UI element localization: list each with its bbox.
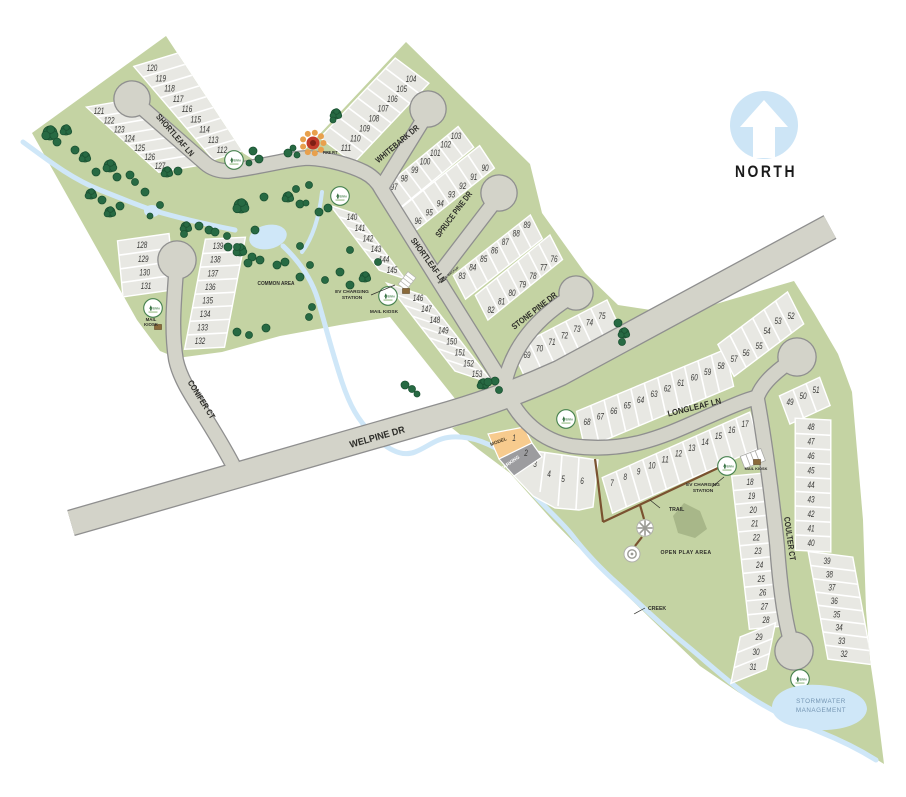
svg-text:57: 57	[730, 354, 738, 364]
svg-text:STATION: STATION	[342, 295, 363, 301]
svg-text:94: 94	[437, 199, 444, 209]
svg-text:133: 133	[197, 323, 208, 333]
svg-text:STORMWATER: STORMWATER	[796, 698, 846, 705]
svg-text:123: 123	[114, 125, 125, 135]
svg-text:30: 30	[752, 647, 759, 657]
svg-text:102: 102	[440, 140, 451, 150]
svg-text:87: 87	[502, 237, 510, 247]
svg-text:148: 148	[430, 315, 441, 325]
svg-text:31: 31	[749, 662, 756, 672]
svg-text:61: 61	[677, 378, 684, 388]
svg-text:116: 116	[182, 104, 193, 114]
svg-text:103: 103	[451, 131, 462, 141]
svg-text:43: 43	[807, 495, 814, 505]
svg-text:49: 49	[786, 397, 793, 407]
svg-text:130: 130	[139, 268, 150, 278]
svg-text:33: 33	[838, 636, 845, 646]
svg-text:28: 28	[762, 615, 770, 625]
svg-text:EV CHARGING: EV CHARGING	[335, 289, 369, 295]
svg-text:86: 86	[491, 246, 498, 256]
svg-text:4: 4	[547, 469, 551, 479]
svg-text:65: 65	[624, 400, 632, 410]
svg-text:16: 16	[728, 425, 735, 435]
svg-text:48: 48	[807, 422, 814, 432]
svg-text:118: 118	[164, 84, 175, 94]
svg-text:75: 75	[598, 311, 606, 321]
svg-text:121: 121	[94, 106, 105, 116]
svg-text:EV CHARGING: EV CHARGING	[686, 482, 720, 488]
svg-text:10: 10	[648, 460, 655, 470]
svg-text:FIRE PIT: FIRE PIT	[323, 150, 338, 155]
svg-text:70: 70	[536, 344, 543, 354]
svg-text:35: 35	[833, 609, 841, 619]
svg-text:45: 45	[807, 466, 815, 476]
svg-text:105: 105	[396, 84, 407, 94]
svg-text:81: 81	[498, 297, 505, 307]
svg-text:67: 67	[597, 412, 605, 422]
svg-text:84: 84	[469, 263, 476, 273]
svg-text:73: 73	[573, 324, 580, 334]
svg-text:124: 124	[124, 134, 135, 144]
svg-text:99: 99	[411, 165, 418, 175]
svg-text:88: 88	[513, 229, 520, 239]
svg-text:140: 140	[347, 212, 358, 222]
svg-text:149: 149	[438, 326, 449, 336]
svg-text:27: 27	[760, 601, 769, 611]
svg-text:79: 79	[519, 280, 526, 290]
svg-text:8: 8	[624, 472, 628, 482]
svg-text:101: 101	[430, 148, 441, 158]
svg-text:MANAGEMENT: MANAGEMENT	[796, 707, 846, 714]
svg-text:139: 139	[213, 241, 224, 251]
svg-text:66: 66	[610, 406, 617, 416]
svg-text:26: 26	[759, 588, 767, 598]
svg-text:TERRA: TERRA	[338, 194, 347, 198]
svg-text:135: 135	[202, 295, 213, 305]
svg-text:107: 107	[378, 104, 389, 114]
svg-text:117: 117	[173, 94, 184, 104]
svg-text:100: 100	[420, 157, 431, 167]
svg-text:138: 138	[210, 255, 221, 265]
svg-text:46: 46	[807, 451, 814, 461]
svg-text:153: 153	[472, 369, 483, 379]
svg-text:39: 39	[823, 556, 830, 566]
svg-text:93: 93	[448, 190, 455, 200]
svg-text:142: 142	[363, 233, 374, 243]
svg-text:36: 36	[831, 596, 838, 606]
svg-text:150: 150	[446, 337, 457, 347]
svg-text:76: 76	[550, 254, 557, 264]
svg-text:KIOSK: KIOSK	[144, 322, 159, 327]
svg-text:145: 145	[387, 265, 398, 275]
svg-text:136: 136	[205, 282, 216, 292]
svg-text:59: 59	[704, 367, 711, 377]
svg-text:17: 17	[741, 419, 749, 429]
svg-text:63: 63	[650, 389, 657, 399]
svg-text:58: 58	[717, 361, 724, 371]
svg-text:44: 44	[807, 480, 814, 490]
svg-text:68: 68	[583, 417, 590, 427]
svg-text:9: 9	[637, 466, 641, 476]
svg-text:TRAIL: TRAIL	[669, 507, 685, 513]
svg-text:OPEN PLAY AREA: OPEN PLAY AREA	[661, 550, 712, 556]
svg-text:23: 23	[754, 546, 762, 556]
svg-text:19: 19	[748, 491, 755, 501]
svg-text:111: 111	[341, 143, 352, 153]
svg-text:1: 1	[512, 433, 516, 443]
svg-text:91: 91	[470, 172, 477, 182]
svg-text:151: 151	[455, 347, 466, 357]
svg-text:MAIL KIOSK: MAIL KIOSK	[370, 309, 399, 315]
svg-text:60: 60	[691, 372, 698, 382]
svg-text:54: 54	[763, 326, 770, 336]
svg-text:11: 11	[662, 455, 669, 465]
svg-text:109: 109	[359, 123, 370, 133]
svg-text:CREEK: CREEK	[648, 606, 666, 612]
svg-text:72: 72	[561, 331, 568, 341]
svg-text:112: 112	[217, 145, 228, 155]
svg-text:64: 64	[637, 395, 644, 405]
svg-text:14: 14	[702, 437, 709, 447]
svg-text:56: 56	[742, 348, 749, 358]
svg-text:108: 108	[369, 114, 380, 124]
svg-text:110: 110	[350, 133, 361, 143]
svg-text:29: 29	[755, 632, 763, 642]
svg-text:152: 152	[463, 358, 474, 368]
svg-text:80: 80	[508, 288, 515, 298]
svg-text:132: 132	[195, 336, 206, 346]
svg-text:40: 40	[807, 538, 814, 548]
svg-text:47: 47	[807, 437, 815, 447]
svg-text:106: 106	[387, 94, 398, 104]
svg-text:113: 113	[208, 135, 219, 145]
svg-text:37: 37	[828, 583, 836, 593]
svg-text:41: 41	[807, 524, 814, 534]
svg-text:2: 2	[523, 448, 527, 458]
svg-text:32: 32	[840, 649, 847, 659]
svg-text:NORTH: NORTH	[735, 163, 797, 181]
svg-text:22: 22	[752, 532, 760, 542]
svg-text:24: 24	[755, 560, 763, 570]
svg-text:25: 25	[757, 574, 766, 584]
svg-text:12: 12	[675, 449, 682, 459]
svg-text:TERRA: TERRA	[151, 306, 160, 310]
svg-text:95: 95	[426, 207, 434, 217]
svg-text:114: 114	[199, 125, 210, 135]
svg-text:53: 53	[774, 316, 781, 326]
svg-text:13: 13	[688, 443, 695, 453]
svg-text:78: 78	[529, 271, 536, 281]
svg-text:82: 82	[487, 305, 494, 315]
svg-text:120: 120	[147, 63, 158, 73]
svg-text:128: 128	[137, 240, 148, 250]
svg-text:42: 42	[807, 509, 814, 519]
svg-text:34: 34	[836, 623, 843, 633]
svg-text:141: 141	[355, 223, 366, 233]
svg-text:90: 90	[481, 163, 488, 173]
svg-text:TERRA: TERRA	[232, 158, 241, 162]
svg-text:STATION: STATION	[693, 488, 714, 494]
svg-text:15: 15	[715, 431, 723, 441]
svg-text:71: 71	[548, 337, 555, 347]
svg-text:137: 137	[208, 268, 219, 278]
svg-text:134: 134	[200, 309, 211, 319]
svg-text:89: 89	[523, 220, 530, 230]
svg-text:51: 51	[812, 385, 819, 395]
svg-text:85: 85	[480, 254, 488, 264]
svg-text:147: 147	[421, 304, 432, 314]
svg-text:143: 143	[371, 244, 382, 254]
svg-text:119: 119	[156, 73, 167, 83]
svg-text:83: 83	[458, 271, 465, 281]
svg-text:MAIL KIOSK: MAIL KIOSK	[745, 466, 768, 471]
svg-text:129: 129	[138, 254, 149, 264]
svg-text:52: 52	[787, 311, 794, 321]
svg-text:74: 74	[586, 318, 593, 328]
svg-text:38: 38	[826, 569, 833, 579]
svg-text:6: 6	[580, 476, 584, 486]
svg-text:TERRA: TERRA	[725, 464, 734, 468]
svg-text:50: 50	[799, 391, 806, 401]
svg-text:104: 104	[406, 74, 417, 84]
svg-text:TERRA: TERRA	[798, 677, 807, 681]
svg-text:TERRA: TERRA	[564, 417, 573, 421]
svg-text:77: 77	[540, 263, 548, 273]
svg-text:126: 126	[145, 152, 156, 162]
svg-text:98: 98	[401, 174, 408, 184]
svg-text:131: 131	[141, 281, 152, 291]
svg-text:96: 96	[414, 216, 421, 226]
svg-text:TERRA: TERRA	[386, 294, 395, 298]
svg-text:55: 55	[755, 341, 763, 351]
svg-text:20: 20	[749, 505, 757, 515]
svg-text:122: 122	[104, 115, 115, 125]
svg-text:62: 62	[664, 384, 671, 394]
svg-text:21: 21	[751, 519, 759, 529]
svg-text:18: 18	[746, 477, 753, 487]
svg-text:146: 146	[413, 293, 424, 303]
svg-text:COMMON AREA: COMMON AREA	[258, 281, 296, 287]
svg-text:115: 115	[191, 114, 202, 124]
